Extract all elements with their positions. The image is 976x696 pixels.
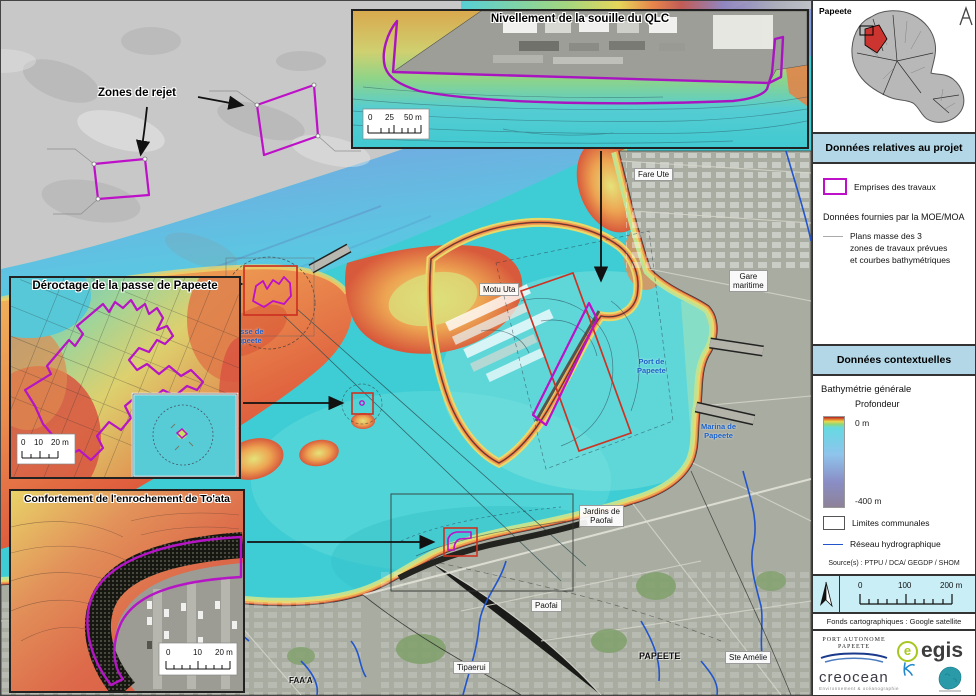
context-section-header: Données contextuelles xyxy=(812,345,976,375)
toata-scalebar: 0 10 20 m xyxy=(159,643,237,675)
gare-line1: Gare xyxy=(739,272,757,281)
port-de-papeete-label: Port de Papeete xyxy=(637,358,666,375)
depth-colorbar xyxy=(823,416,845,508)
scalebar-section: 0 100 200 m xyxy=(812,575,976,613)
port-autonome-line1: PORT AUTONOME xyxy=(822,637,885,643)
toata-scale-0: 0 xyxy=(166,648,171,657)
limites-swatch-icon xyxy=(823,516,845,530)
limites-row: Limites communales xyxy=(823,516,929,530)
scale-tick-200: 200 m xyxy=(940,581,963,590)
plans-masse-row: Plans masse des 3 zones de travaux prévu… xyxy=(823,230,950,266)
project-legend-box: Emprises des travaux Données fournies pa… xyxy=(812,163,976,345)
island-label: Papeete xyxy=(819,6,852,16)
island-locator: Papeete xyxy=(812,0,976,133)
creocean-k-icon xyxy=(901,661,917,677)
legend-panel: Papeete Données relatives au projet Empr… xyxy=(812,0,976,696)
fare-ute-label: Fare Ute xyxy=(634,168,673,181)
plans-masse-line-icon xyxy=(823,236,843,237)
basemap-credit-box: Fonds cartographiques : Google satellite xyxy=(812,613,976,630)
direction-environnement-logo-icon xyxy=(935,665,965,693)
egis-logo: e egis xyxy=(897,639,963,663)
emprises-label: Emprises des travaux xyxy=(854,182,936,192)
zones-de-rejet-label: Zones de rejet xyxy=(98,87,176,99)
qlc-scale-0: 0 xyxy=(368,113,373,122)
depth-top-label: 0 m xyxy=(855,418,869,428)
logos-box: PORT AUTONOME PAPEETE e egis creocean En… xyxy=(812,630,976,696)
north-arrow-box xyxy=(813,576,840,612)
jardins-line2: Paofai xyxy=(590,516,613,525)
reseau-label: Réseau hydrographique xyxy=(850,539,941,549)
project-section-header: Données relatives au projet xyxy=(812,133,976,163)
toata-scale-2: 20 m xyxy=(215,648,233,657)
emprises-legend-row: Emprises des travaux xyxy=(823,178,936,195)
creocean-subtitle: Environnement & océanographie xyxy=(819,686,899,691)
scale-tick-0: 0 xyxy=(858,581,863,590)
fournies-row: Données fournies par la MOE/MOA xyxy=(823,212,965,222)
gare-maritime-label: Gare maritime xyxy=(729,270,768,292)
reseau-row: Réseau hydrographique xyxy=(823,539,941,549)
inset-toata-title: Confortement de l'enrochement de To'ata xyxy=(11,493,243,505)
motu-uta-label: Motu Uta xyxy=(479,283,519,296)
qlc-scale-1: 25 xyxy=(385,113,394,122)
inset-passe-title: Déroctage de la passe de Papeete xyxy=(11,280,239,292)
egis-wordmark: egis xyxy=(921,639,963,663)
marina-de-papeete-label: Marina de Papeete xyxy=(701,423,736,440)
inset-qlc: 0 25 50 m Nivellement de la souille du Q… xyxy=(351,9,809,149)
fournies-label: Données fournies par la MOE/MOA xyxy=(823,212,965,222)
creocean-logo: creocean Environnement & océanographie xyxy=(819,669,899,691)
basemap-credit: Fonds cartographiques : Google satellite xyxy=(827,617,962,626)
profondeur-label: Profondeur xyxy=(855,399,900,409)
qlc-scale-2: 50 m xyxy=(404,113,422,122)
main-map: Zones de rejet Fare Ute Motu Uta Gare ma… xyxy=(0,0,812,696)
jardins-paofai-label: Jardins de Paofai xyxy=(579,505,624,527)
scale-ruler xyxy=(860,594,952,604)
island-map: Papeete xyxy=(813,1,975,132)
inset-passe-canvas: 0 10 20 m xyxy=(11,278,239,477)
tipaerui-label: Tipaerui xyxy=(453,661,490,674)
map-sheet: Zones de rejet Fare Ute Motu Uta Gare ma… xyxy=(0,0,976,696)
port-autonome-line2: PAPEETE xyxy=(838,644,870,650)
legend-north-arrow-icon xyxy=(817,580,835,608)
port-autonome-waves-icon xyxy=(817,652,891,664)
north-arrow-icon xyxy=(960,8,972,25)
passe-scale-2: 20 m xyxy=(51,438,69,447)
sources-note: Source(s) : PTPU / DCA/ GEGDP / SHOM xyxy=(813,560,975,567)
context-legend-box: Bathymétrie générale Profondeur 0 m -400… xyxy=(812,375,976,575)
gare-line2: maritime xyxy=(733,281,764,290)
qlc-scalebar: 0 25 50 m xyxy=(363,109,429,139)
paofai-label: Paofai xyxy=(531,599,562,612)
inset-passe: 0 10 20 m Déroctage de la passe de Papee… xyxy=(9,276,241,479)
passe-subinset xyxy=(133,394,237,477)
creocean-wordmark: creocean xyxy=(819,669,899,686)
inset-qlc-canvas: 0 25 50 m xyxy=(353,11,807,147)
depth-bottom-label: -400 m xyxy=(855,496,881,506)
jardins-line1: Jardins de xyxy=(583,507,620,516)
bathy-title: Bathymétrie générale xyxy=(821,384,911,395)
papeete-city-label: PAPEETE xyxy=(639,651,680,661)
reseau-swatch-icon xyxy=(823,544,843,545)
inset-qlc-title: Nivellement de la souille du QLC xyxy=(353,13,807,25)
plans-line2: zones de travaux prévues xyxy=(850,243,947,253)
plans-line1: Plans masse des 3 xyxy=(850,231,922,241)
passe-scale-1: 10 xyxy=(34,438,43,447)
ste-amelie-label: Ste Amélie xyxy=(725,651,771,664)
plans-line3: et courbes bathymétriques xyxy=(850,255,950,265)
limites-label: Limites communales xyxy=(852,518,929,528)
scale-tick-100: 100 xyxy=(898,581,912,590)
inset-toata-canvas: 0 10 20 m xyxy=(11,491,243,691)
faaa-label: FAA'A xyxy=(289,676,313,685)
emprises-swatch-icon xyxy=(823,178,847,195)
passe-scalebar: 0 10 20 m xyxy=(17,434,75,464)
legend-scalebar: 0 100 200 m xyxy=(840,576,975,612)
marina-line2: Papeete xyxy=(704,431,733,440)
toata-scale-1: 10 xyxy=(193,648,202,657)
inset-toata: 0 10 20 m Confortement de l'enrochement … xyxy=(9,489,245,693)
port-autonome-logo: PORT AUTONOME PAPEETE xyxy=(817,637,891,669)
port-line2: Papeete xyxy=(637,366,666,375)
egis-e-icon: e xyxy=(897,641,918,662)
passe-scale-0: 0 xyxy=(21,438,26,447)
